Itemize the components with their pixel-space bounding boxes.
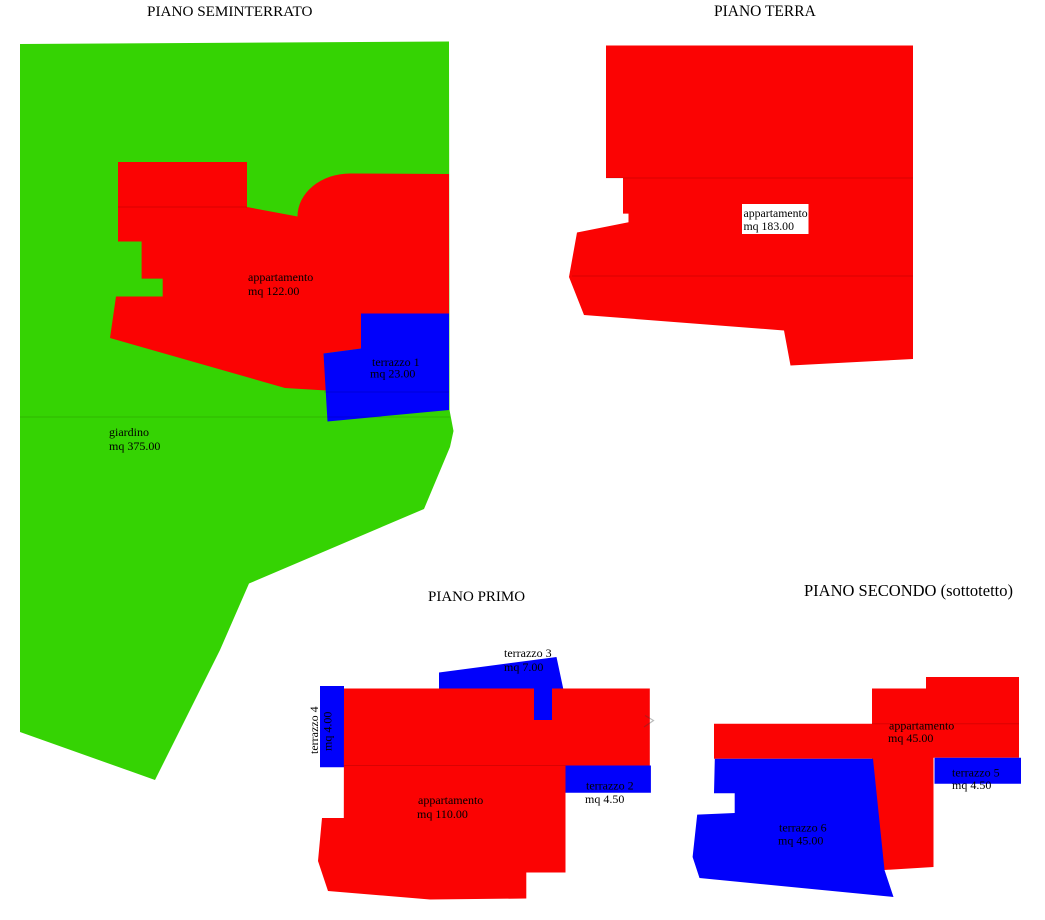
svg-text:mq 45.00: mq 45.00 xyxy=(778,834,823,848)
svg-text:mq 4.00: mq 4.00 xyxy=(321,712,335,751)
svg-text:mq 110.00: mq 110.00 xyxy=(417,807,468,821)
svg-text:mq 45.00: mq 45.00 xyxy=(888,731,933,745)
svg-text:PIANO SEMINTERRATO: PIANO SEMINTERRATO xyxy=(147,3,313,20)
svg-text:giardino: giardino xyxy=(109,425,149,439)
svg-text:appartamento: appartamento xyxy=(744,206,808,220)
svg-text:PIANO SECONDO (sottotetto): PIANO SECONDO (sottotetto) xyxy=(804,581,1013,600)
svg-text:PIANO PRIMO: PIANO PRIMO xyxy=(428,589,525,605)
svg-text:mq 375.00: mq 375.00 xyxy=(109,439,160,453)
svg-text:PIANO TERRA: PIANO TERRA xyxy=(714,3,817,20)
svg-text:terrazzo 2: terrazzo 2 xyxy=(586,779,634,793)
svg-text:appartamento: appartamento xyxy=(418,793,483,807)
svg-text:terrazzo 4: terrazzo 4 xyxy=(307,706,321,754)
svg-text:mq 4.50: mq 4.50 xyxy=(952,778,991,792)
svg-text:mq 7.00: mq 7.00 xyxy=(504,660,543,674)
svg-text:mq 122.00: mq 122.00 xyxy=(248,284,299,298)
svg-text:mq 4.50: mq 4.50 xyxy=(585,792,624,806)
svg-text:mq 23.00: mq 23.00 xyxy=(370,367,415,381)
svg-text:terrazzo 6: terrazzo 6 xyxy=(779,821,827,835)
svg-text:mq 183.00: mq 183.00 xyxy=(744,219,795,233)
svg-text:appartamento: appartamento xyxy=(248,270,313,284)
svg-text:terrazzo 3: terrazzo 3 xyxy=(504,646,552,660)
